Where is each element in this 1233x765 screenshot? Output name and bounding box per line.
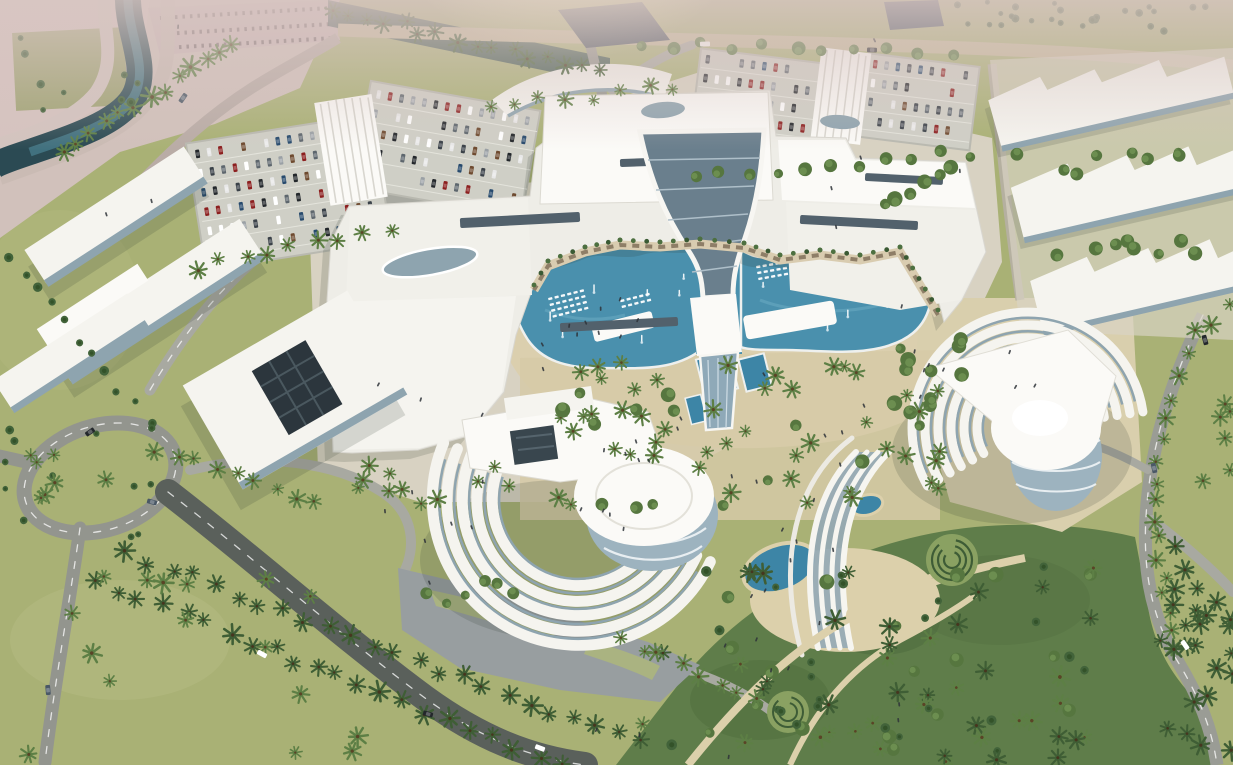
atrium-bridge — [690, 294, 742, 356]
planter — [804, 249, 809, 254]
planter — [684, 238, 689, 243]
fountain-splash — [640, 341, 643, 344]
fountain-splash — [682, 277, 685, 280]
planter — [631, 238, 636, 243]
fountain-splash — [678, 294, 681, 297]
grass-texture — [10, 580, 230, 700]
drum-cap — [1012, 400, 1068, 436]
planter — [844, 251, 849, 256]
planter — [539, 271, 544, 276]
fountain-splash — [846, 316, 849, 319]
planter — [871, 250, 876, 255]
car — [45, 685, 51, 695]
fountain-splash — [826, 329, 829, 332]
planter — [778, 253, 783, 258]
planter — [910, 266, 915, 271]
pedestrian — [959, 169, 961, 174]
fountain-splash — [762, 285, 765, 288]
planter — [923, 287, 928, 292]
planter — [791, 251, 796, 256]
pedestrian — [600, 306, 602, 310]
fountain-splash — [561, 335, 564, 338]
planter — [917, 276, 922, 281]
hotel-roof-court — [510, 425, 558, 465]
planter — [532, 283, 537, 288]
aerial-rendering — [0, 0, 1233, 765]
planter — [754, 245, 759, 250]
planter — [936, 308, 941, 313]
pedestrian — [576, 332, 578, 336]
planter — [712, 238, 717, 243]
planter — [558, 254, 563, 259]
planter — [898, 245, 903, 250]
planter — [644, 239, 649, 244]
planter — [742, 241, 747, 246]
aerial-rendering-stage — [0, 0, 1233, 765]
planter — [818, 248, 823, 253]
planter — [727, 239, 732, 244]
planter — [698, 237, 703, 242]
path-junction — [846, 606, 864, 624]
planter — [884, 247, 889, 252]
planter — [618, 238, 623, 243]
planter — [658, 240, 663, 245]
planter — [546, 259, 551, 264]
atmosphere — [0, 0, 1233, 150]
planter — [583, 245, 588, 250]
planter — [766, 249, 771, 254]
planter — [904, 255, 909, 260]
planter — [929, 297, 934, 302]
fountain-splash — [549, 319, 552, 322]
pedestrian — [482, 479, 484, 483]
planter — [831, 249, 836, 254]
planter — [858, 253, 863, 258]
fountain-splash — [593, 291, 596, 294]
planter — [606, 240, 611, 245]
pedestrian — [609, 512, 611, 516]
planter — [594, 242, 599, 247]
planter — [671, 239, 676, 244]
planter — [570, 249, 575, 254]
